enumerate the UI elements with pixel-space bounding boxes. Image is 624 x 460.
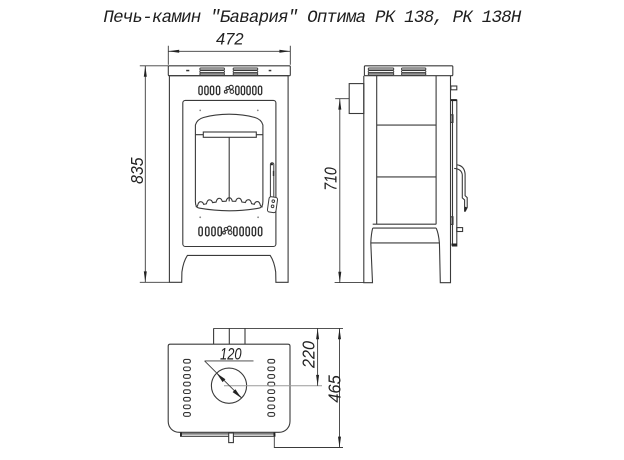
svg-text:220: 220 [299, 341, 319, 369]
svg-text:472: 472 [216, 31, 244, 49]
svg-text:465: 465 [324, 375, 344, 403]
svg-text:Печь-камин "Бавария" Оптима РК: Печь-камин "Бавария" Оптима РК 138, РК 1… [103, 8, 521, 28]
svg-text:710: 710 [320, 167, 340, 191]
svg-text:835: 835 [127, 157, 147, 184]
svg-text:120: 120 [220, 346, 242, 364]
